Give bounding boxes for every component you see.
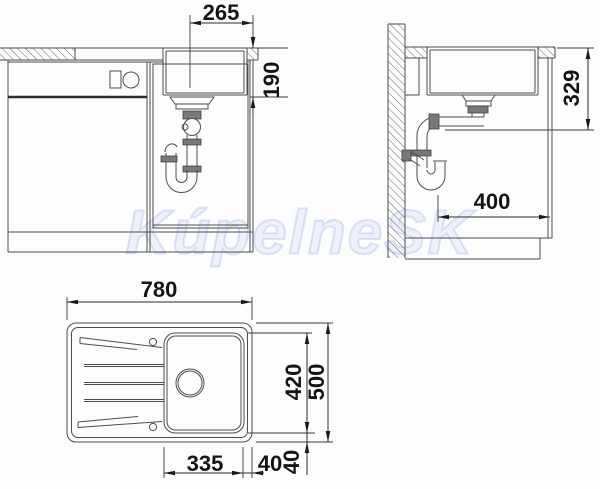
- sink-dimension-diagram: KúpelneSK: [0, 0, 600, 489]
- drainer-grooves: [78, 338, 164, 428]
- front-view-drawing: [0, 15, 288, 252]
- wall-batten: [405, 58, 419, 95]
- dimension-label-335: 335: [187, 453, 224, 475]
- dimension-label-780: 780: [141, 279, 178, 301]
- siphon-front: [161, 97, 214, 193]
- cabinet-front: [8, 60, 253, 252]
- worktop-hatch-right: [247, 49, 258, 60]
- dimension-label-329: 329: [561, 70, 583, 107]
- sink-bowl-side: [427, 47, 538, 95]
- wall-section: [388, 24, 405, 258]
- dimension-label-190: 190: [261, 62, 283, 99]
- dimension-label-400: 400: [474, 191, 511, 213]
- siphon-side: [402, 95, 495, 190]
- drain-hole: [176, 369, 204, 397]
- tap-hole-top: [149, 338, 156, 345]
- dimension-label-40-right: 40: [281, 450, 303, 474]
- worktop-hatch-left: [0, 49, 75, 60]
- panel-switch-square: [110, 71, 121, 88]
- technical-drawing: [0, 0, 600, 489]
- sink-bowl-plan: [164, 333, 244, 433]
- side-view-drawing: [388, 24, 594, 259]
- dimension-label-265: 265: [203, 2, 240, 24]
- dimension-label-420: 420: [283, 364, 305, 401]
- panel-knob-circle: [123, 72, 139, 88]
- tap-hole-bottom: [149, 423, 156, 430]
- dimension-label-500: 500: [306, 364, 328, 401]
- sink-bowl-front: [163, 28, 247, 95]
